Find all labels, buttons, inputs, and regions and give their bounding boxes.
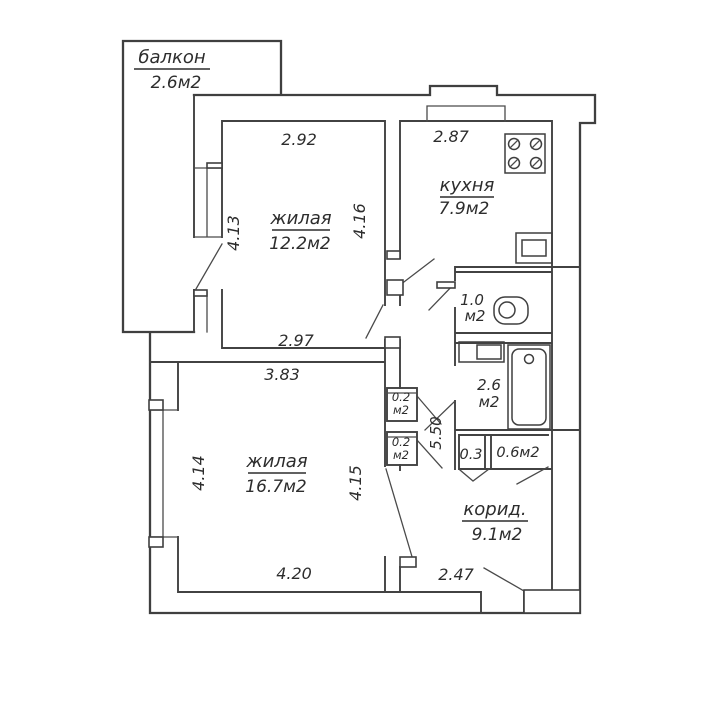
bathroom-area-unit: м2 [479, 393, 500, 411]
large-room-window [149, 400, 178, 547]
balcony-label: балкон 2.6м2 [134, 47, 210, 93]
corridor-label: корид. 9.1м2 2.47 [438, 499, 528, 584]
bathtub-icon [508, 345, 550, 429]
small-room-label: жилая 12.2м2 2.92 4.13 2.97 [224, 130, 332, 350]
kitchen-area: 7.9м2 [439, 199, 490, 219]
dim-room2-top: 3.83 [264, 365, 300, 384]
large-room-label: жилая 16.7м2 3.83 4.14 4.15 4.20 [189, 365, 365, 583]
dim-room2-right: 4.15 [346, 465, 365, 501]
closet-lower-value: 0.2 [392, 435, 410, 449]
dim-room1-left: 4.13 [224, 215, 243, 251]
balcony-name: балкон [138, 47, 206, 68]
niche-small-door [460, 469, 489, 481]
dim-corridor-bottom: 2.47 [438, 565, 474, 584]
toilet-icon [494, 297, 528, 324]
dim-hallway-length: 5.50 [427, 416, 445, 449]
balcony-area: 2.6м2 [151, 73, 202, 93]
hallway-label: 5.50 [427, 416, 445, 449]
niche-large-area: 0.6м2 [496, 445, 539, 461]
balcony-window [194, 163, 222, 332]
kitchen-sink-icon [516, 233, 552, 263]
washbasin-icon [459, 342, 504, 362]
dim-kitchen-side: 4.16 [350, 203, 369, 239]
small-room-name: жилая [269, 208, 331, 229]
floor-plan-drawing: балкон 2.6м2 жилая 12.2м2 2.92 4.13 2.97… [0, 0, 702, 702]
entrance-door [484, 568, 524, 591]
large-room-door [386, 469, 413, 560]
corridor-area: 9.1м2 [472, 525, 523, 545]
wc-label: 1.0 м2 [460, 291, 485, 325]
dim-room1-top: 2.92 [281, 130, 317, 149]
kitchen-window [427, 106, 505, 121]
closet-upper-label: 0.2 м2 [392, 390, 410, 417]
small-room-door [366, 305, 383, 338]
niche-small-area: 0.3 [459, 447, 482, 463]
large-room-name: жилая [245, 451, 307, 472]
niche-labels: 0.3 0.6м2 [459, 445, 539, 463]
closet-upper-unit: м2 [393, 403, 409, 417]
closet-upper-value: 0.2 [392, 390, 410, 404]
dim-kitchen-top: 2.87 [433, 127, 469, 146]
wc-area-unit: м2 [465, 307, 486, 325]
bathroom-label: 2.6 м2 [477, 376, 501, 411]
corridor-name: корид. [463, 499, 526, 520]
floor-plan-page: балкон 2.6м2 жилая 12.2м2 2.92 4.13 2.97… [0, 0, 702, 702]
small-room-area: 12.2м2 [269, 234, 331, 254]
kitchen-door [400, 259, 434, 285]
closet-lower-label: 0.2 м2 [392, 435, 410, 462]
kitchen-label: кухня 7.9м2 2.87 4.16 [350, 127, 495, 239]
dim-room2-bottom: 4.20 [276, 564, 312, 583]
dim-room2-left: 4.14 [189, 455, 208, 491]
closet-lower-unit: м2 [393, 448, 409, 462]
large-room-area: 16.7м2 [245, 477, 307, 497]
dim-room1-bottom: 2.97 [278, 331, 314, 350]
kitchen-name: кухня [440, 175, 495, 196]
bathroom-area-value: 2.6 [477, 376, 501, 394]
stove-icon [505, 134, 545, 173]
balcony-door [196, 244, 222, 289]
